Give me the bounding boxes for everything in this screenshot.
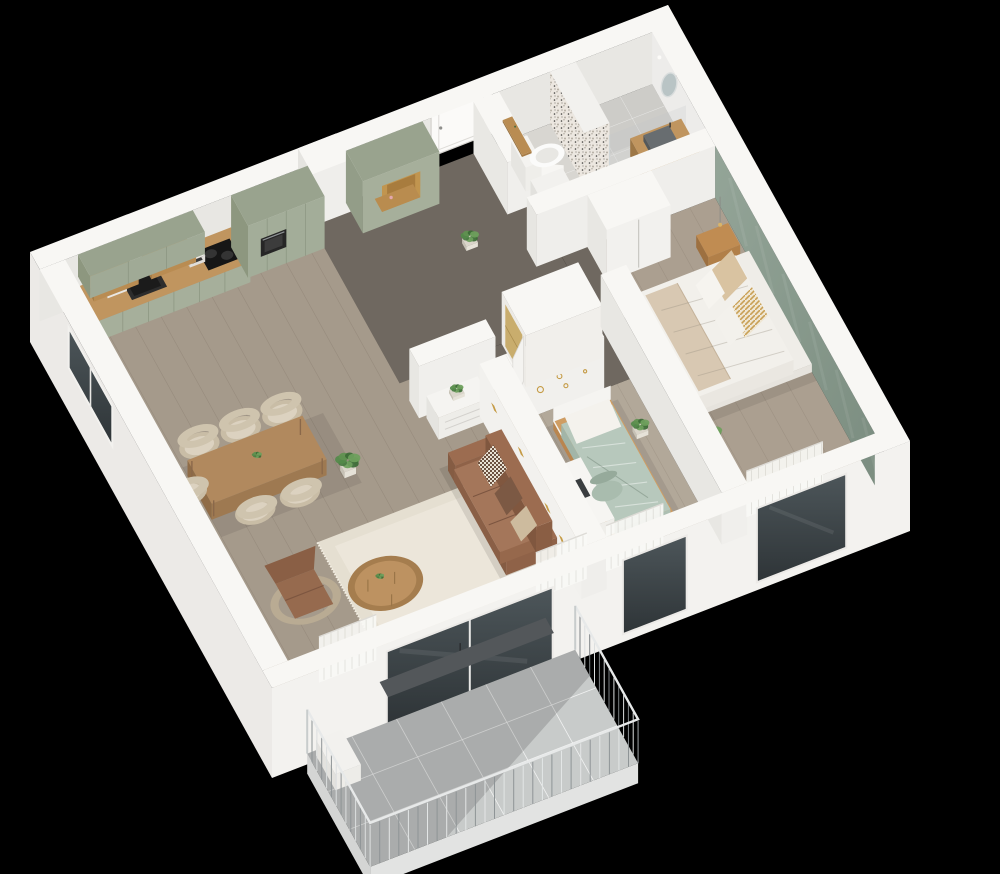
apartment-floor-plan-image bbox=[0, 0, 1000, 874]
apartment-render bbox=[0, 0, 1000, 874]
